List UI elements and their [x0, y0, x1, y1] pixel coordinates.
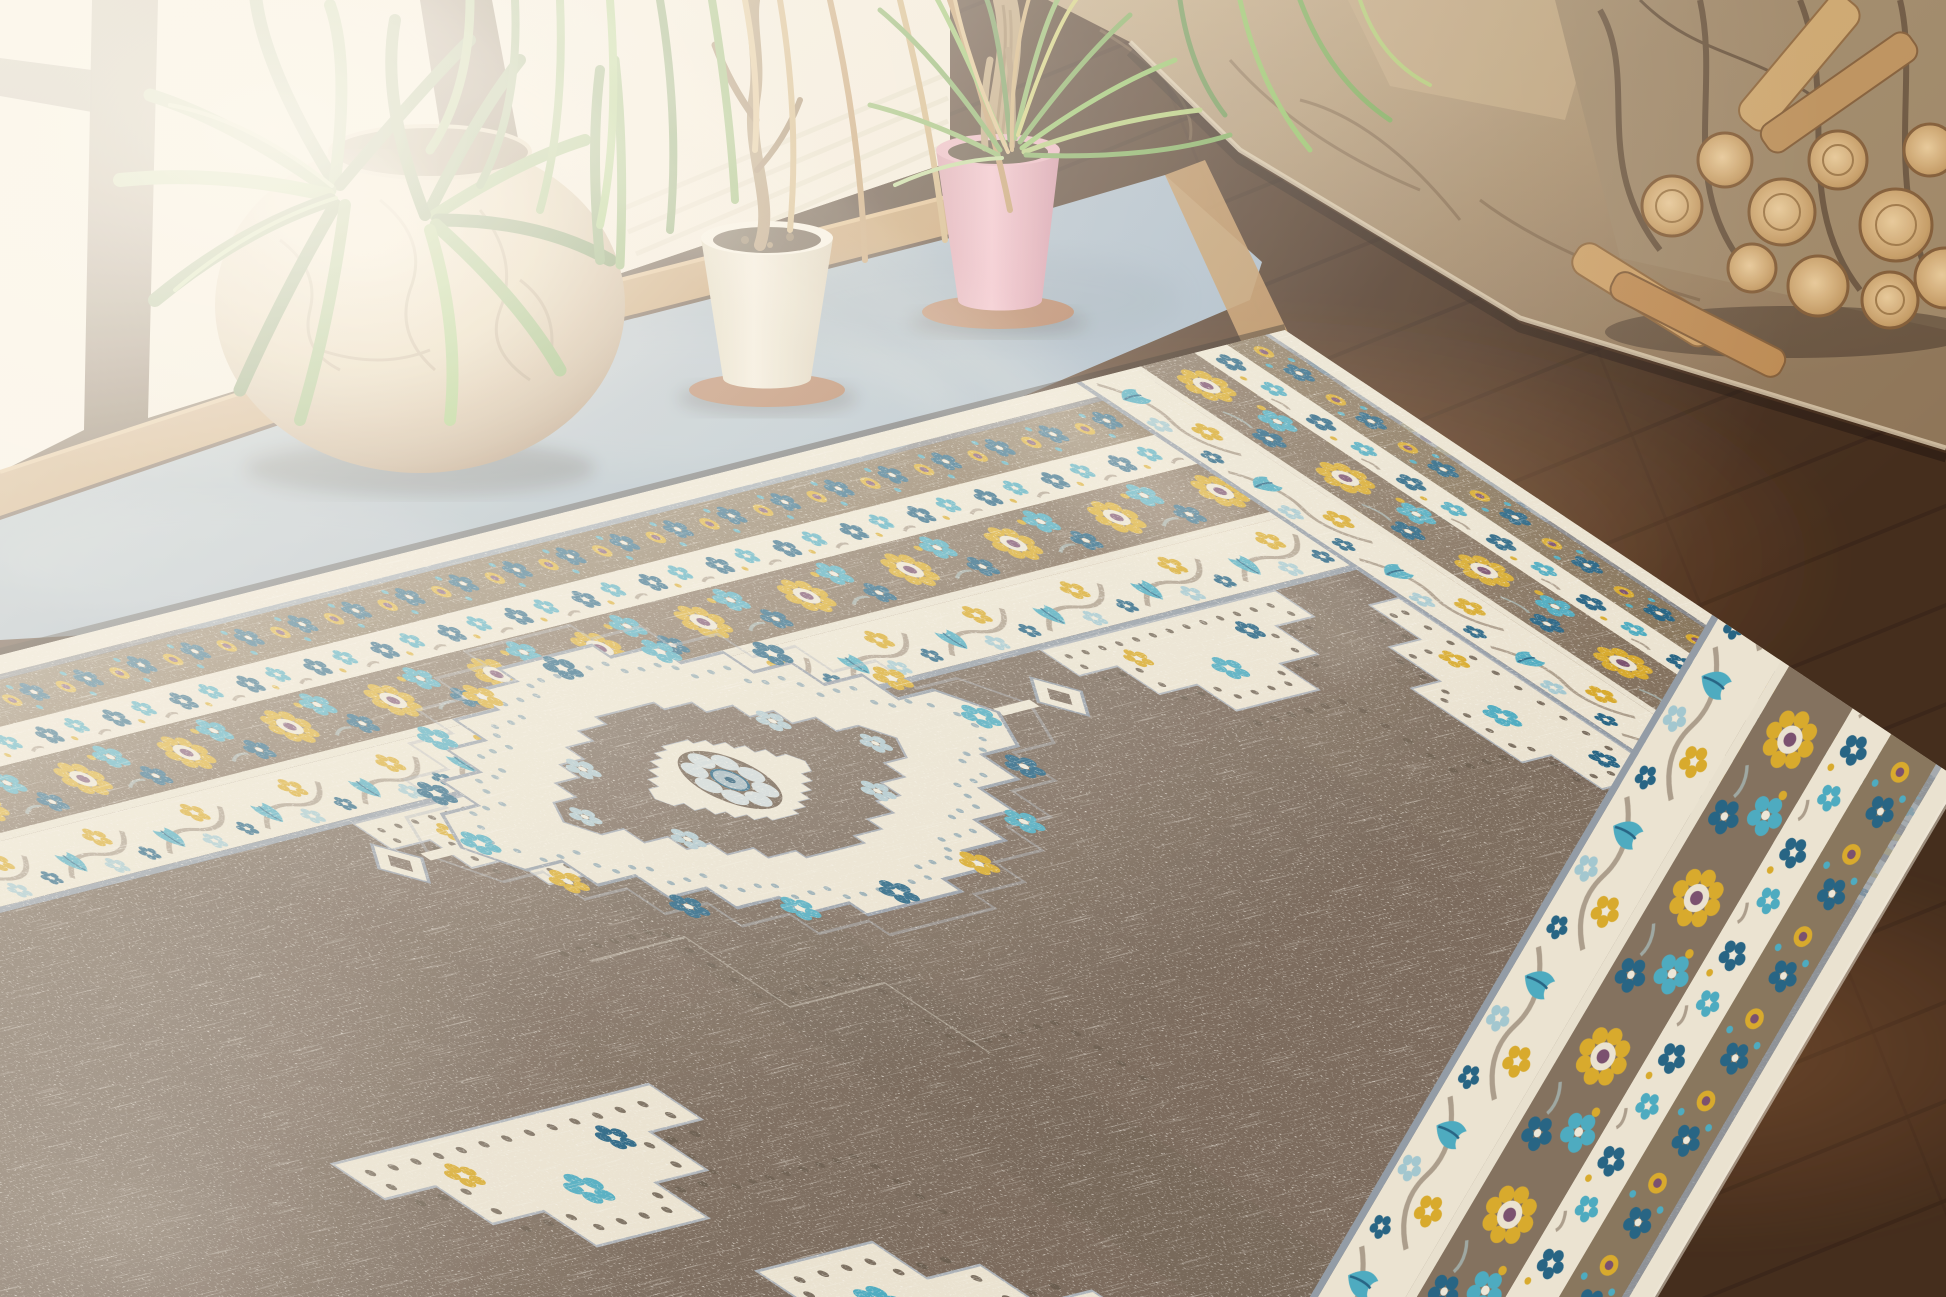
sunlight-haze	[0, 0, 1946, 1297]
scene-svg	[0, 0, 1946, 1297]
photo-canvas	[0, 0, 1946, 1297]
warm-cast	[0, 0, 1946, 1297]
